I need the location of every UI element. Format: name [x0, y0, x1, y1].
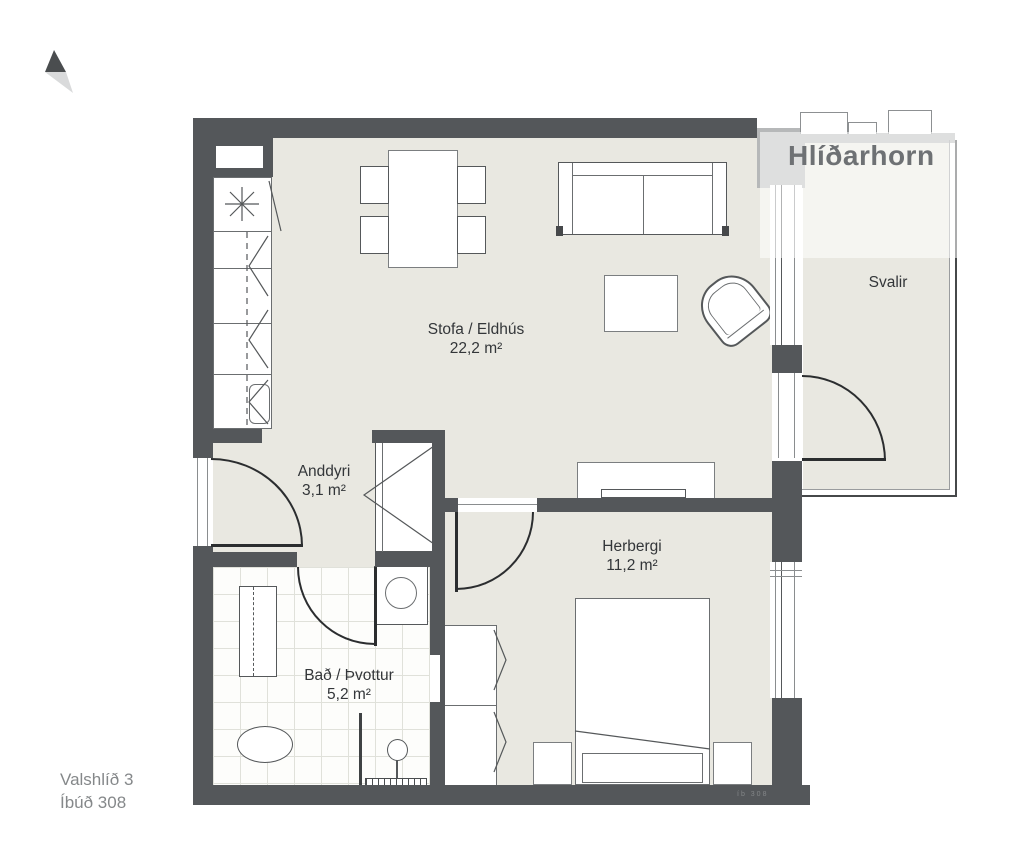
stove-hood-line	[269, 181, 281, 231]
wall-top	[193, 118, 757, 138]
bedroom-wardrobe-chevrons	[494, 630, 506, 772]
room-label-bath: Bað / Þvottur 5,2 m²	[284, 666, 414, 704]
room-name: Svalir	[848, 273, 928, 292]
room-name: Bað / Þvottur	[284, 666, 414, 685]
window-glazing-line	[775, 562, 776, 698]
address-street: Valshlíð 3	[60, 768, 133, 791]
wall-bedroom-east-lower	[772, 698, 802, 785]
address-block: Valshlíð 3 Íbúð 308	[60, 768, 133, 814]
entry-door-opening	[193, 458, 213, 546]
north-arrow-dark-half	[45, 50, 66, 72]
bedroom-window	[770, 562, 802, 698]
bath-wall-niche	[430, 655, 440, 702]
wall-balcony-south	[772, 461, 802, 512]
wall-left-upper	[193, 118, 213, 458]
bed-blanket-fold	[575, 731, 710, 749]
window-vent-line	[770, 576, 802, 577]
wall-entry-stub-left	[213, 429, 262, 443]
room-label-balcony: Svalir	[848, 273, 928, 292]
room-area: 22,2 m²	[396, 339, 556, 358]
wall-bottom	[193, 785, 810, 805]
window-vent-line	[770, 570, 802, 571]
room-area: 5,2 m²	[284, 685, 414, 704]
wall-niche	[216, 146, 263, 168]
door-threshold-line	[458, 504, 537, 505]
door-frame-line	[794, 373, 795, 458]
room-area: 3,1 m²	[264, 481, 384, 500]
room-label-entry: Anddyri 3,1 m²	[264, 462, 384, 500]
logo-text: Hlíðarhorn	[788, 140, 935, 172]
bedroom-door-opening	[458, 498, 537, 512]
room-name: Herbergi	[572, 537, 692, 556]
wall-bath-north-left	[213, 552, 297, 567]
room-area: 11,2 m²	[572, 556, 692, 575]
room-name: Anddyri	[264, 462, 384, 481]
door-frame-line	[207, 458, 208, 546]
window-glazing-line	[781, 562, 782, 698]
north-arrow-light-half	[45, 72, 73, 93]
window-glazing-line	[794, 562, 795, 698]
wall-balcony-mid	[772, 343, 802, 373]
stove-burner-icon	[225, 187, 259, 221]
wall-stamp: íb 308	[737, 791, 768, 798]
room-name: Stofa / Eldhús	[396, 320, 556, 339]
floor-plan: Stofa / Eldhús 22,2 m² Anddyri 3,1 m² He…	[0, 0, 1013, 867]
door-frame-line	[778, 373, 779, 458]
cabinet-door-chevrons	[249, 236, 268, 424]
balcony-door-opening	[772, 373, 802, 458]
room-label-bedroom: Herbergi 11,2 m²	[572, 537, 692, 575]
wall-entry-right	[432, 430, 445, 565]
address-unit: Íbúð 308	[60, 791, 133, 814]
wall-bedroom-east-upper	[772, 512, 802, 562]
north-arrow-icon	[40, 45, 80, 100]
wall-left-lower	[193, 546, 213, 805]
room-label-living: Stofa / Eldhús 22,2 m²	[396, 320, 556, 358]
door-frame-line	[197, 458, 198, 546]
